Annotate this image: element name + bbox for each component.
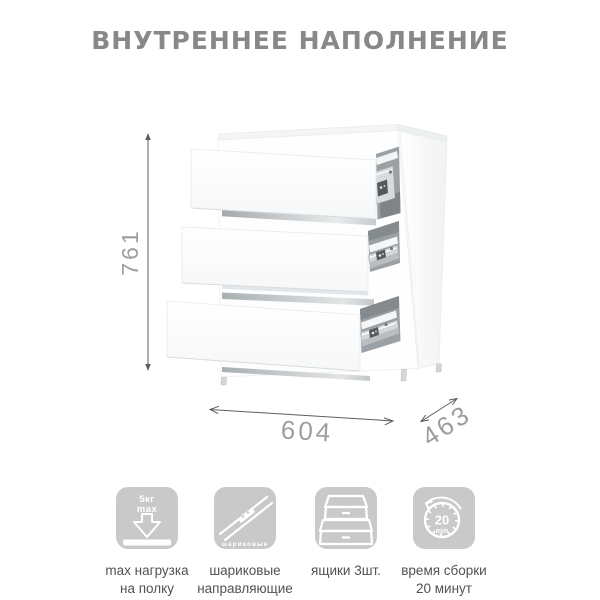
width-dimension-value: 604 [280,414,334,447]
drawer-2-slide-bolt [382,253,384,255]
timer-glyph: 20 min [413,487,475,549]
feature-label: время сборки 20 минут [401,562,486,598]
drawer-2-slide-bolt [390,247,393,250]
drawer-2-front-panel [182,227,368,292]
timer-unit: min [436,528,448,535]
feature-label-line2: направляющие [197,580,293,598]
height-dimension-value: 761 [117,228,143,275]
dimension-width: 604 [210,406,393,447]
drawer-3-slide-bolt [372,332,375,335]
feature-label: шариковые направляющие [197,562,293,598]
ball-bearing-slides-icon: шариковые [214,487,276,549]
feature-label-line1: max нагрузка [105,562,188,580]
drawer-boxes [320,496,372,544]
cabinet-foot-right-front [401,369,407,381]
dimension-depth: 463 [416,398,476,452]
max-load-glyph: 5кг max [116,487,178,549]
timer-value: 20 [435,513,449,528]
rail-ball [247,511,250,514]
drawer-3-slide-bolt [384,323,387,326]
rail-line-inner [225,503,272,540]
height-arrow-top [145,133,151,140]
max-load-shelf-icon: 5кг max [116,487,178,549]
feature-assembly-time: 20 min время сборки 20 минут [382,487,506,598]
drawer-3-slide-bolt [375,331,377,333]
feature-label-line1: время сборки [401,562,486,580]
down-arrow-icon [134,514,160,537]
rail-ball [242,515,245,518]
drawer-2-slide-bolt [379,254,382,257]
depth-dimension-value: 463 [416,398,476,452]
drawer-1-slide-bolt [384,185,386,187]
slides-caption: шариковые [222,541,269,548]
feature-label-line1: шариковые [197,562,293,580]
slide-rail-glyph: шариковые [214,487,276,549]
height-arrow-bottom [145,364,151,371]
assembly-time-icon: 20 min [413,487,475,549]
drawers-glyph [315,487,377,549]
feature-label-line2: 20 минут [401,580,486,598]
width-arrow-right [384,418,393,425]
product-diagram: 761 604 463 [0,0,600,470]
drawer-1-slide-bolt [389,170,392,173]
rail-carriage [238,508,255,523]
drawers-icon [315,487,377,549]
cabinet-foot-left [221,377,227,385]
feature-row: 5кг max max нагрузка на полку [0,487,600,600]
bottom-drawer-lid [320,520,372,531]
drawer-1-slide-bolt [380,186,383,189]
feature-label: ящики 3шт. [311,562,381,580]
drawer-1-front-panel [191,149,376,219]
dimension-height: 761 [117,133,151,371]
top-drawer-lid [325,496,367,507]
shelf-bar [123,540,171,546]
feature-label-line2: на полку [105,580,188,598]
cabinet-foot-right-back [436,364,442,372]
infographic-page: ВНУТРЕННЕЕ НАПОЛНЕНИЕ [0,0,600,600]
feature-label-line1: ящики 3шт. [311,562,381,580]
feature-label: max нагрузка на полку [105,562,188,598]
